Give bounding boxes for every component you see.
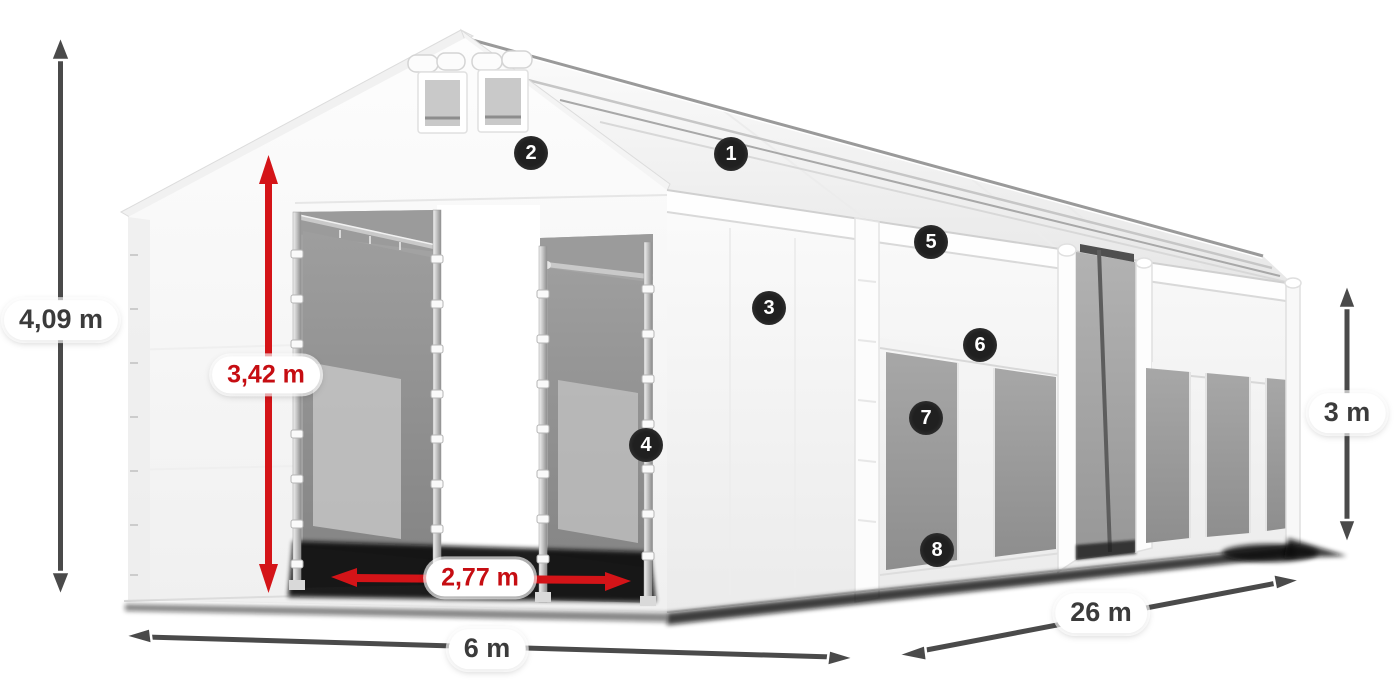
dim-label-entrance-width: 2,77 m [426, 559, 534, 596]
callout-marker-6: 6 [963, 328, 997, 362]
dim-label-side-height: 3 m [1309, 393, 1386, 433]
callout-marker-7: 7 [909, 401, 943, 435]
callout-marker-2: 2 [514, 136, 548, 170]
callout-marker-8: 8 [920, 533, 954, 567]
dim-label-entrance-height: 3,42 m [212, 356, 320, 393]
tent-diagram-stage: 4,09 m 3,42 m 2,77 m 6 m 26 m 3 m 1 2 3 … [0, 0, 1400, 700]
tent-illustration [0, 0, 1400, 700]
dim-label-side-length: 26 m [1055, 593, 1147, 633]
callout-marker-3: 3 [752, 291, 786, 325]
callout-marker-4: 4 [629, 428, 663, 462]
front-entrance-left [297, 210, 437, 588]
front-entrance-middle-gap [437, 205, 540, 600]
callout-marker-5: 5 [914, 225, 948, 259]
front-entrance-right [540, 234, 653, 603]
callout-marker-1: 1 [714, 137, 748, 171]
gable-vent-right [472, 51, 532, 132]
dim-label-front-width: 6 m [449, 629, 526, 669]
dim-label-total-height: 4,09 m [4, 300, 118, 340]
